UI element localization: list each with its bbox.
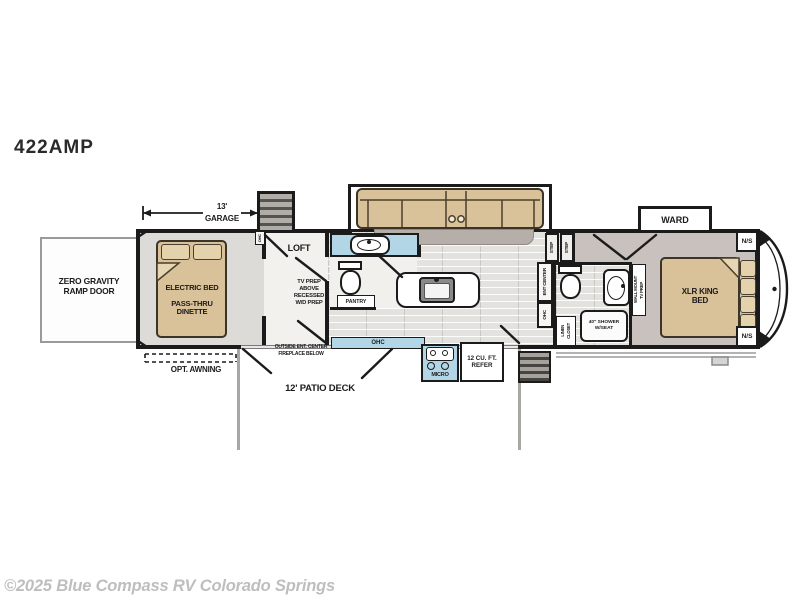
bed-pillow	[740, 278, 756, 295]
step-label: STEP	[565, 242, 570, 253]
refer-label: 12 CU. FT. REFER	[464, 355, 500, 369]
ohc-label: OHC	[543, 310, 548, 320]
bed-pillow	[740, 260, 756, 277]
step-box: STEP	[545, 233, 559, 262]
main-bath-sink-bowl	[607, 276, 625, 300]
tv-prep-label-line: W/D PREP	[295, 300, 322, 306]
burner	[427, 362, 435, 370]
entertainment-center: ENT CENTER	[537, 262, 553, 302]
wall-segment	[325, 233, 329, 257]
main-bath-toilet-tank	[558, 265, 582, 274]
garage-dimension-value: 13'	[215, 203, 229, 212]
loft-ladder	[257, 191, 295, 233]
wall-mount-label-2: TV PREP	[640, 282, 644, 299]
dealer-watermark: ©2025 Blue Compass RV Colorado Springs	[4, 577, 335, 596]
main-bath-toilet-bowl	[560, 274, 581, 299]
ward-label: WARD	[661, 215, 689, 225]
island-faucet	[434, 277, 439, 282]
ohc-cabinet-hall: OHC	[537, 302, 553, 328]
outside-ent-center-label: OUTSIDE ENT. CENTER	[275, 345, 328, 351]
pantry-label: PANTRY	[346, 299, 367, 305]
linen-label-2: CLOSET	[567, 323, 571, 339]
shower: 40" SHOWER W/SEAT	[580, 310, 628, 342]
bed-pillow	[740, 296, 756, 313]
sofa	[356, 188, 544, 229]
ohc-label: OHC	[258, 234, 262, 242]
ohc-label: OHC	[371, 340, 384, 346]
burner	[441, 362, 449, 370]
half-bath-toilet-tank	[338, 261, 362, 270]
linen-closet: LINEN CLOSET	[556, 316, 576, 346]
wall-segment	[136, 229, 262, 233]
dinette-label: PASS-THRU DINETTE	[159, 300, 225, 317]
shower-label: 40" SHOWER W/SEAT	[585, 320, 623, 332]
refrigerator: 12 CU. FT. REFER	[460, 342, 504, 382]
entry-steps	[518, 351, 551, 383]
half-bath-faucet	[367, 240, 371, 244]
bed-pillow	[193, 244, 222, 260]
nightstand: N/S	[736, 326, 758, 347]
burner	[442, 350, 448, 356]
wall-segment	[136, 229, 140, 349]
nightstand: N/S	[736, 231, 758, 252]
micro-label: MICRO	[431, 372, 448, 378]
burner	[430, 350, 436, 356]
electric-bed-label: ELECTRIC BED	[165, 284, 218, 292]
pantry: PANTRY	[337, 295, 375, 308]
ent-center-label: ENT CENTER	[543, 268, 548, 295]
tv-prep-label-line: ABOVE	[299, 286, 319, 292]
island-sink-basin	[424, 283, 450, 299]
step-box: STEP	[560, 233, 574, 262]
tv-prep-label-line: RECESSED	[294, 293, 324, 299]
wall-segment	[136, 345, 241, 349]
ramp-door-label: ZERO GRAVITY RAMP DOOR	[48, 277, 130, 296]
rv-floorplan: 422AMP OHC WARD PANTRY	[0, 0, 800, 600]
awning-dashes	[145, 354, 236, 362]
loft-label: LOFT	[288, 243, 311, 253]
king-bed-label: XLR KING BED	[675, 288, 725, 306]
patio-deck-label: 12' PATIO DECK	[285, 384, 355, 395]
nightstand-label: N/S	[742, 238, 753, 245]
step-label: STEP	[550, 242, 555, 253]
main-bath-faucet	[621, 284, 625, 288]
wall-segment	[325, 281, 329, 345]
half-bath-toilet-bowl	[340, 270, 361, 295]
frame-lines	[556, 353, 756, 365]
tv-prep-label-line: TV PREP	[297, 279, 320, 285]
patio-deck-rail-left	[237, 349, 240, 450]
wall-mount-tv-prep: WALL MOUNT TV PREP	[632, 264, 646, 316]
opt-awning-label: OPT. AWNING	[171, 366, 221, 375]
ohc-cabinet-kitchen: OHC	[331, 337, 425, 349]
garage-dimension-label: GARAGE	[205, 215, 239, 224]
ward-slideout: WARD	[638, 206, 712, 233]
linen-label-1: LINEN	[561, 325, 565, 337]
floorplan-title: 422AMP	[14, 137, 94, 159]
wall-segment	[518, 345, 759, 349]
dimension-arrow	[143, 206, 258, 220]
ohc-cabinet-garage: OHC	[255, 231, 265, 245]
nightstand-label: N/S	[742, 333, 753, 340]
front-cap	[756, 229, 787, 349]
fireplace-below-label: FIREPLACE BELOW	[278, 352, 323, 358]
bed-pillow	[161, 244, 190, 260]
wall-mount-label-1: WALL MOUNT	[634, 276, 638, 303]
